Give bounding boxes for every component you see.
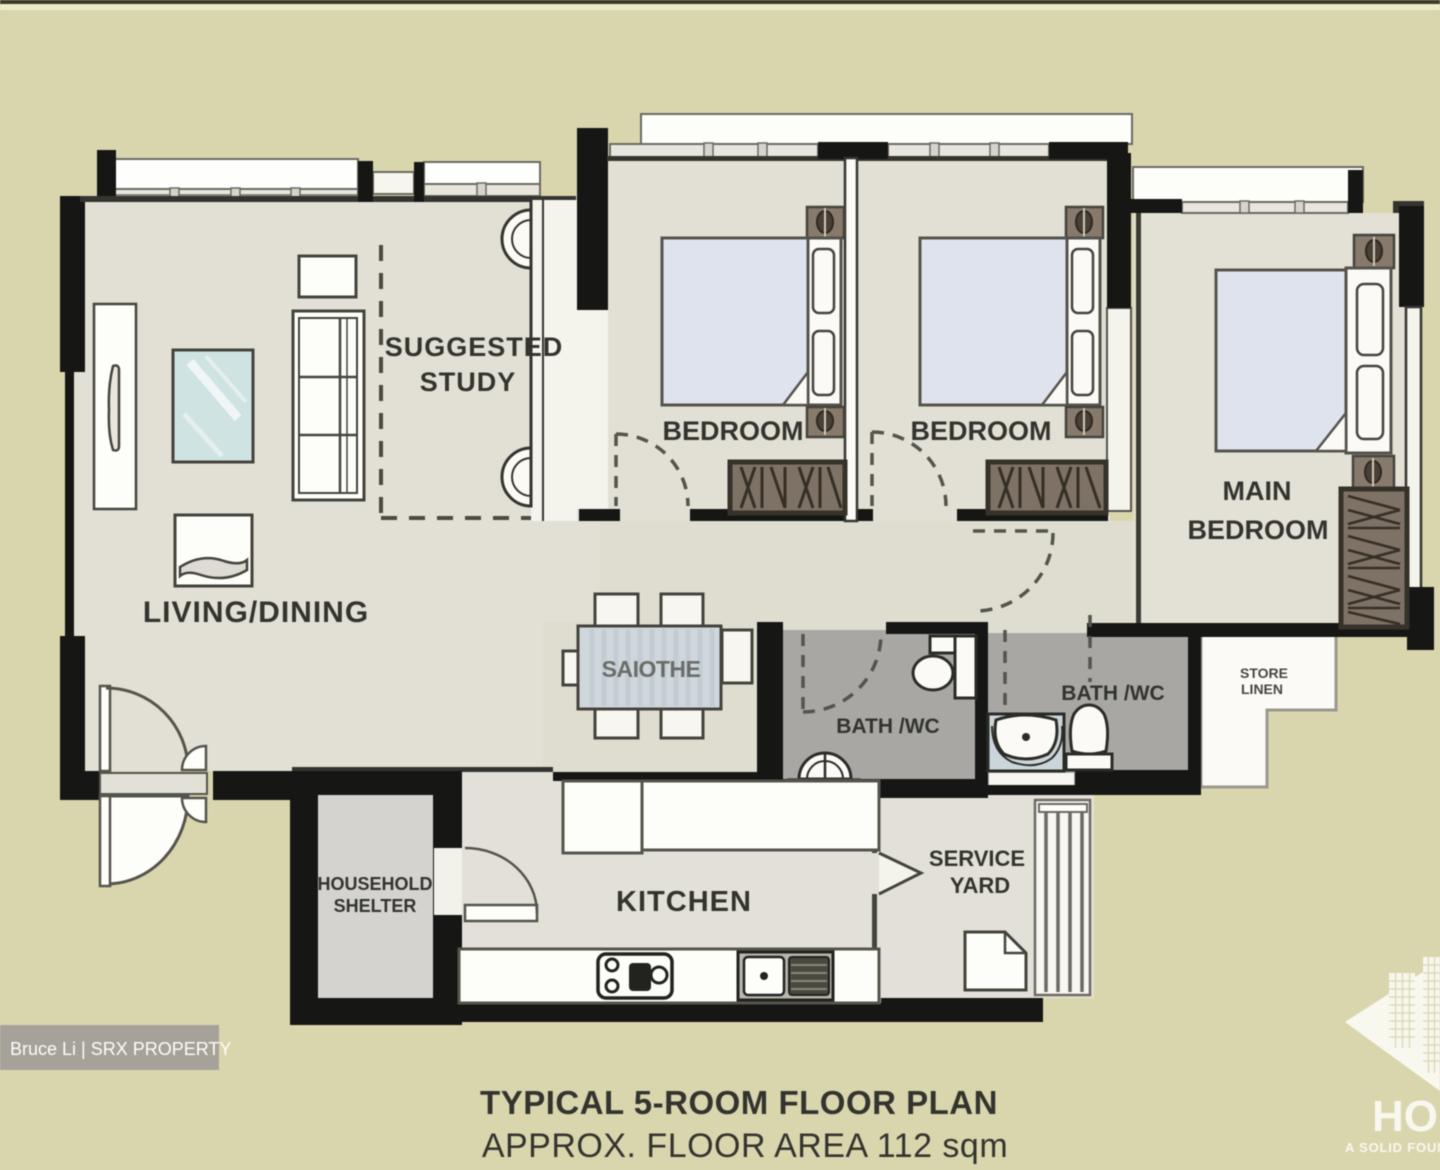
svg-text:BEDROOM: BEDROOM [1188,515,1329,545]
svg-text:LINEN: LINEN [1241,681,1283,697]
svg-text:YARD: YARD [950,873,1010,898]
svg-text:TYPICAL 5-ROOM FLOOR PLAN: TYPICAL 5-ROOM FLOOR PLAN [480,1084,998,1121]
svg-text:A SOLID FOUNDA: A SOLID FOUNDA [1345,1140,1440,1155]
svg-text:BATH /WC: BATH /WC [1061,682,1164,705]
svg-text:LIVING/DINING: LIVING/DINING [143,596,369,629]
svg-text:SERVICE: SERVICE [929,846,1025,871]
svg-text:SAIOTHE: SAIOTHE [602,656,701,682]
svg-text:SUGGESTED: SUGGESTED [385,332,564,362]
svg-text:STUDY: STUDY [420,367,517,397]
svg-text:BEDROOM: BEDROOM [911,416,1052,446]
svg-text:KITCHEN: KITCHEN [616,886,752,918]
svg-text:BATH /WC: BATH /WC [836,715,939,738]
svg-text:APPROX. FLOOR AREA 112 sqm: APPROX. FLOOR AREA 112 sqm [482,1127,1008,1165]
svg-text:SHELTER: SHELTER [334,896,417,916]
svg-text:HOM: HOM [1372,1092,1440,1141]
svg-text:STORE: STORE [1240,665,1288,681]
svg-text:HOUSEHOLD: HOUSEHOLD [317,874,432,894]
svg-text:BEDROOM: BEDROOM [663,416,804,446]
svg-text:Bruce Li | SRX PROPERTY: Bruce Li | SRX PROPERTY [10,1039,231,1059]
svg-text:MAIN: MAIN [1223,476,1292,506]
